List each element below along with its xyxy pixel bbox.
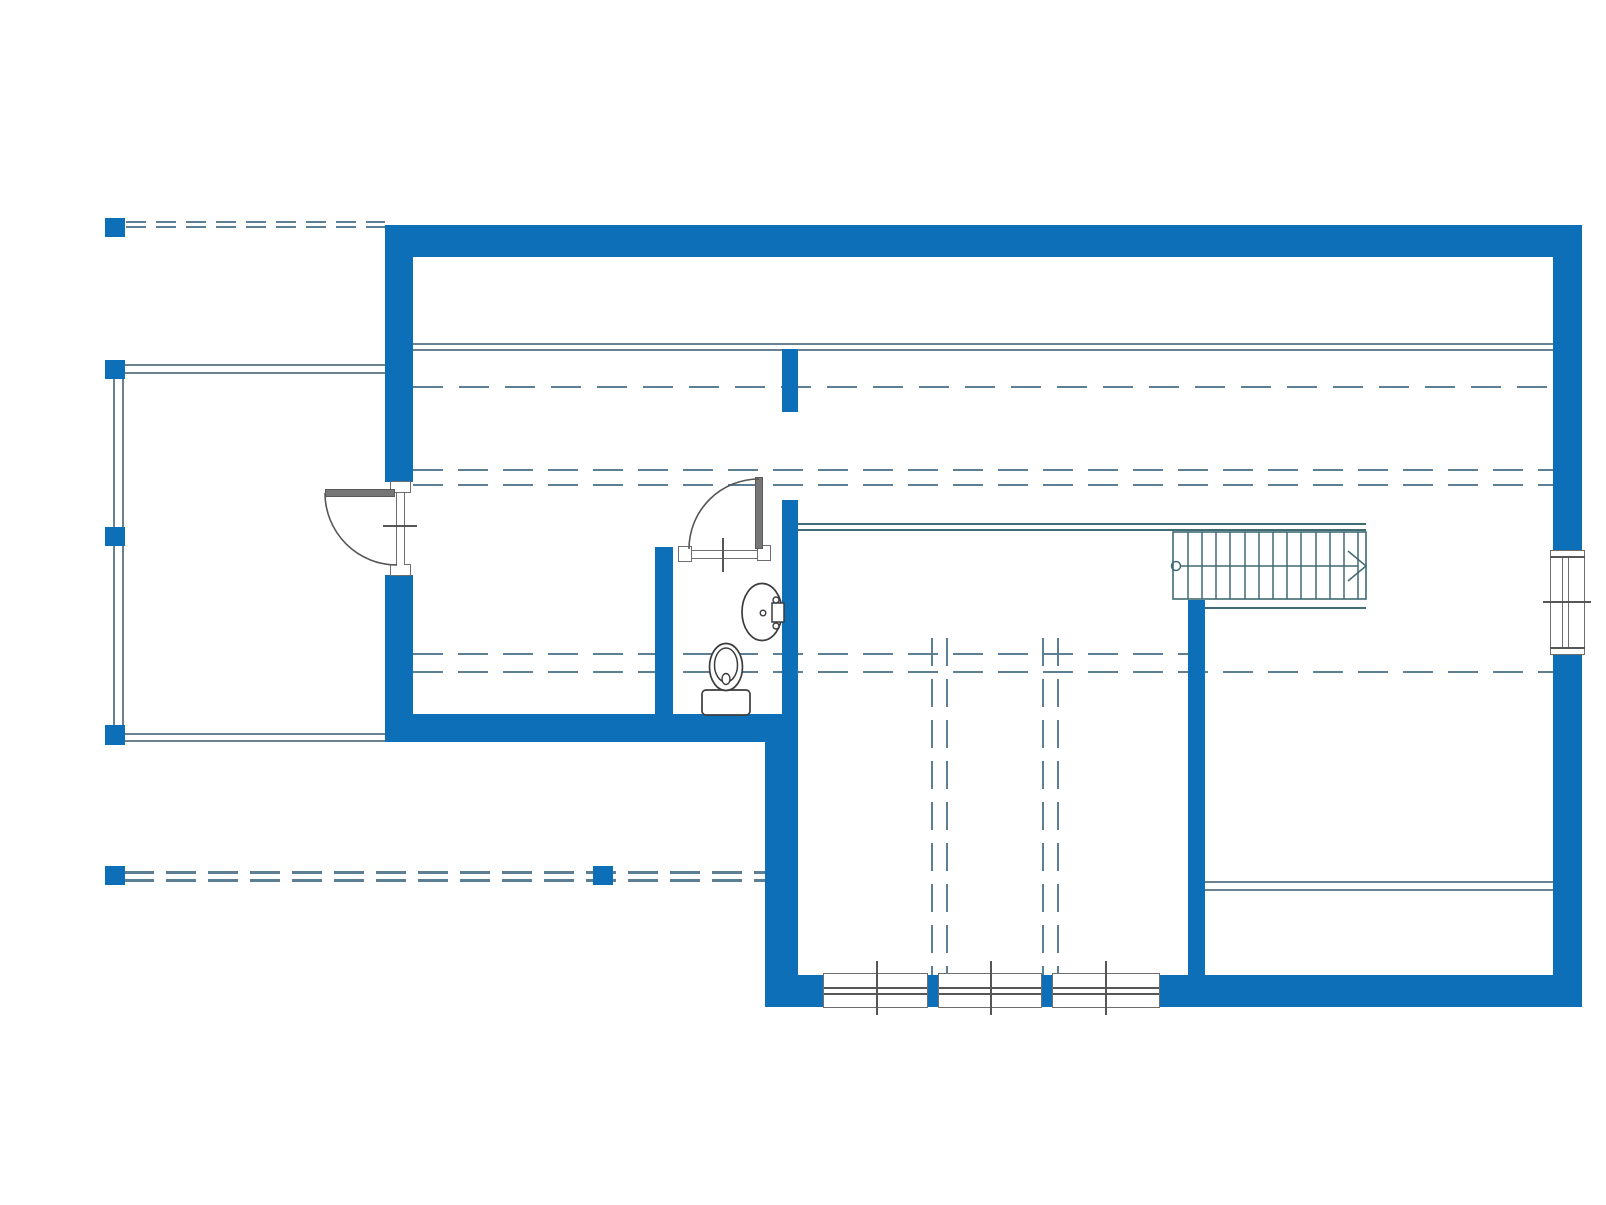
- west-door-swing-arc: [325, 493, 397, 565]
- toilet-drain: [722, 674, 730, 685]
- floor-plan-canvas: [0, 0, 1606, 1205]
- plan-symbols-layer: [0, 0, 1606, 1205]
- sink-tap-knob-top: [773, 597, 779, 603]
- toilet-tank: [702, 690, 750, 715]
- sink-backsplash-box: [772, 603, 784, 622]
- sink-faucet: [760, 610, 766, 616]
- sink-tap-knob-bottom: [773, 623, 779, 629]
- bath-door-swing-arc: [689, 479, 759, 549]
